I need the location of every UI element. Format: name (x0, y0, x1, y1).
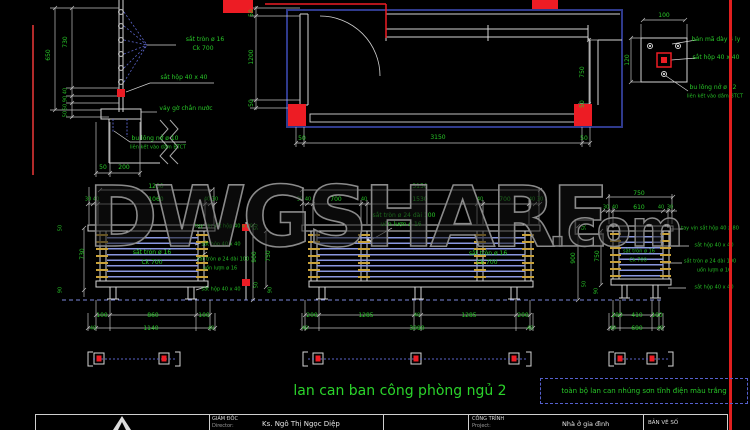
frame-line-left (32, 25, 34, 175)
post-connectors (96, 234, 108, 281)
anchor-strips (88, 352, 673, 366)
leader-fan (124, 12, 147, 82)
linework-layer (0, 0, 750, 430)
railing-bars-right (619, 236, 663, 279)
finish-note: toàn bộ lan can nhúng sơn tĩnh điện màu … (540, 378, 748, 404)
section-detail (50, 0, 214, 177)
plate-detail (629, 18, 696, 91)
director-name: Ks. Ngô Thị Ngọc Diệp (262, 420, 340, 428)
project-label: CÔNG TRÌNH (472, 417, 504, 423)
post-connectors (474, 234, 486, 281)
post-connectors (196, 234, 208, 281)
post-connectors (522, 234, 534, 281)
railing-bars-left (107, 237, 198, 282)
anchor-bolts (113, 119, 127, 137)
post-connectors (660, 233, 671, 279)
company-logo (102, 414, 142, 430)
red-highlights (97, 0, 672, 362)
project-name: Nhà ở gia đình (562, 420, 609, 428)
plate-dims (629, 18, 687, 84)
director-sublabel: Director: (212, 424, 234, 430)
post-connectors (610, 233, 621, 279)
drawing-title: lan can ban công phòng ngủ 2 (270, 383, 530, 399)
director-label: GIÁM ĐỐC (212, 417, 238, 423)
post-connectors (358, 234, 370, 281)
post-connectors (308, 234, 320, 281)
railing-bars-center (317, 237, 525, 282)
project-sublabel: Project: (472, 424, 491, 430)
bottom-dims (86, 300, 665, 331)
drawing-number-label: BẢN VẼ SỐ (648, 420, 678, 426)
cad-drawing-sheet: 65073040905050sắt tròn ø 16Ck 700sắt hộp… (0, 0, 750, 430)
finish-note-text: toàn bộ lan can nhúng sơn tĩnh điện màu … (561, 387, 726, 395)
frame-line-right (729, 0, 732, 430)
